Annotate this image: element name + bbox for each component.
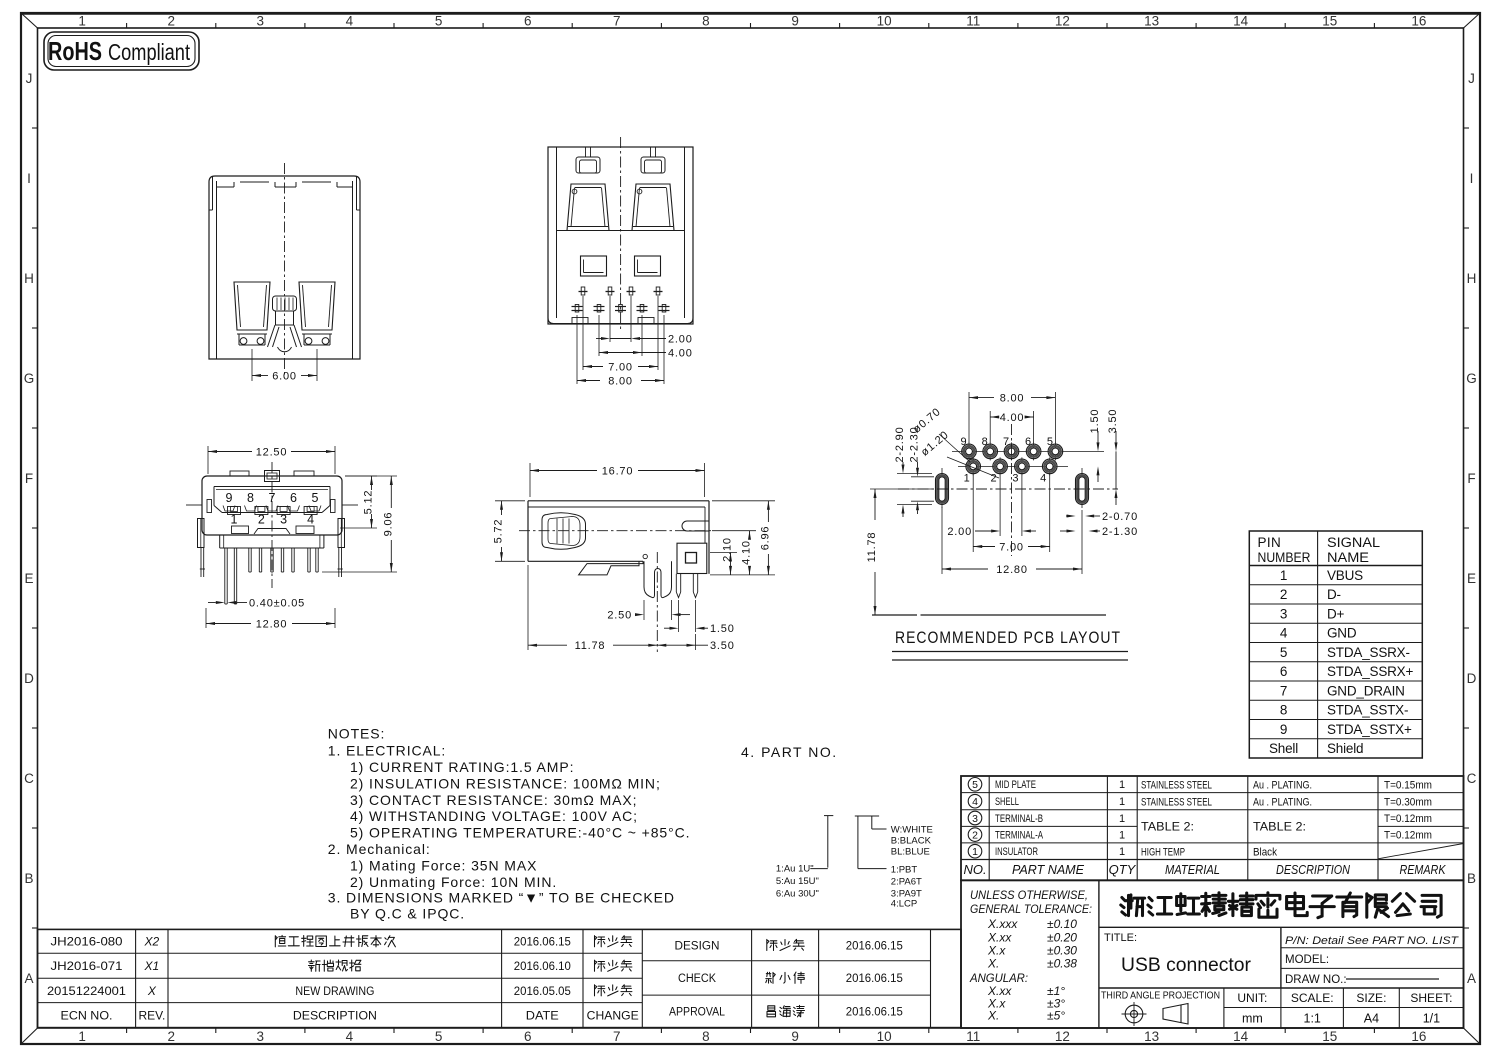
- svg-text:1: 1: [1119, 829, 1125, 841]
- svg-text:Au . PLATING.: Au . PLATING.: [1253, 780, 1312, 792]
- svg-text:ANGULAR:: ANGULAR:: [969, 971, 1028, 985]
- svg-text:9: 9: [960, 436, 966, 448]
- svg-text:Shell: Shell: [1269, 741, 1298, 756]
- svg-text:3: 3: [257, 1029, 265, 1044]
- svg-text:8: 8: [247, 491, 254, 505]
- svg-text:C: C: [1467, 771, 1477, 786]
- svg-text:GND: GND: [1327, 626, 1357, 641]
- svg-text:TERMINAL-B: TERMINAL-B: [995, 813, 1043, 825]
- svg-text:DRAW NO.:: DRAW NO.:: [1285, 974, 1347, 986]
- svg-text:A: A: [1467, 971, 1476, 986]
- svg-text:±0.10: ±0.10: [1047, 917, 1077, 931]
- svg-text:6: 6: [524, 1029, 532, 1044]
- svg-text:3: 3: [972, 813, 978, 825]
- svg-text:Compliant: Compliant: [108, 39, 190, 65]
- svg-text:MODEL:: MODEL:: [1285, 954, 1329, 966]
- svg-text:12.50: 12.50: [256, 447, 288, 459]
- svg-text:BL:BLUE: BL:BLUE: [891, 847, 930, 858]
- svg-text:1: 1: [1280, 568, 1287, 583]
- svg-text:2016.06.10: 2016.06.10: [514, 959, 571, 973]
- svg-text:H: H: [24, 271, 34, 286]
- svg-text:4) WITHSTANDING VOLTAGE: 100V: 4) WITHSTANDING VOLTAGE: 100V AC;: [350, 808, 638, 824]
- svg-text:2: 2: [167, 14, 175, 29]
- svg-text:1.50: 1.50: [1089, 409, 1101, 434]
- svg-text:X.: X.: [987, 1009, 999, 1023]
- svg-text:GENERAL TOLERANCE:: GENERAL TOLERANCE:: [970, 902, 1092, 916]
- svg-text:T=0.15mm: T=0.15mm: [1384, 780, 1432, 792]
- svg-text:8: 8: [702, 1029, 710, 1044]
- svg-text:NAME: NAME: [1327, 550, 1369, 565]
- svg-text:2: 2: [167, 1029, 175, 1044]
- svg-text:10: 10: [877, 14, 892, 29]
- svg-text:2016.06.15: 2016.06.15: [846, 971, 903, 985]
- svg-text:±0.30: ±0.30: [1047, 944, 1077, 958]
- svg-text:SCALE:: SCALE:: [1291, 991, 1334, 1005]
- svg-text:2-1.30: 2-1.30: [1102, 526, 1138, 538]
- svg-text:DESCRIPTION: DESCRIPTION: [293, 1008, 377, 1022]
- svg-text:12.80: 12.80: [996, 564, 1028, 576]
- svg-text:6:Au 30Uʺ: 6:Au 30Uʺ: [776, 889, 819, 900]
- svg-text:2. Mechanical:: 2. Mechanical:: [328, 841, 431, 857]
- svg-text:MID PLATE: MID PLATE: [995, 779, 1036, 791]
- svg-text:11.78: 11.78: [575, 640, 606, 652]
- svg-text:6.96: 6.96: [759, 526, 771, 551]
- svg-text:4.10: 4.10: [741, 540, 753, 565]
- svg-text:1: 1: [964, 473, 970, 485]
- svg-text:1: 1: [972, 846, 978, 858]
- svg-text:7: 7: [269, 491, 276, 505]
- svg-text:UNIT:: UNIT:: [1237, 991, 1267, 1005]
- svg-text:2-2.90: 2-2.90: [894, 427, 906, 463]
- svg-text:SHEET:: SHEET:: [1410, 991, 1452, 1005]
- svg-text:8: 8: [1280, 703, 1287, 718]
- svg-text:I: I: [27, 171, 31, 186]
- svg-text:7: 7: [1003, 436, 1009, 448]
- svg-text:STDA_SSTX-: STDA_SSTX-: [1327, 703, 1408, 718]
- svg-text:5: 5: [1047, 436, 1053, 448]
- svg-text:TABLE 2:: TABLE 2:: [1253, 822, 1306, 834]
- svg-text:J: J: [1468, 71, 1475, 86]
- svg-text:TERMINAL-A: TERMINAL-A: [995, 829, 1043, 841]
- svg-text:APPROVAL: APPROVAL: [669, 1007, 726, 1019]
- svg-text:H: H: [1467, 271, 1477, 286]
- svg-text:STDA_SSTX+: STDA_SSTX+: [1327, 722, 1412, 737]
- svg-text:0.40±0.05: 0.40±0.05: [249, 598, 305, 610]
- svg-text:8: 8: [982, 436, 988, 448]
- svg-text:9: 9: [791, 14, 799, 29]
- svg-text:G: G: [24, 371, 35, 386]
- svg-text:1:PBT: 1:PBT: [891, 864, 918, 875]
- svg-text:5: 5: [435, 14, 443, 29]
- svg-text:C: C: [24, 771, 34, 786]
- svg-text:F: F: [25, 471, 33, 486]
- svg-text:3: 3: [1280, 606, 1287, 621]
- svg-text:BY Q.C & IPQC.: BY Q.C & IPQC.: [350, 906, 465, 922]
- svg-text:QTY: QTY: [1109, 862, 1137, 877]
- svg-text:J: J: [26, 71, 33, 86]
- svg-text:9: 9: [791, 1029, 799, 1044]
- svg-text:4.00: 4.00: [1000, 412, 1025, 424]
- svg-text:11: 11: [966, 1029, 980, 1044]
- svg-text:D: D: [1467, 671, 1477, 686]
- svg-text:1: 1: [1119, 846, 1125, 858]
- svg-text:12.80: 12.80: [256, 619, 288, 631]
- svg-text:E: E: [24, 571, 33, 586]
- svg-text:2.50: 2.50: [607, 610, 632, 622]
- svg-text:4: 4: [346, 14, 354, 29]
- svg-text:I: I: [1470, 171, 1474, 186]
- svg-text:12: 12: [1055, 14, 1070, 29]
- svg-text:4. PART NO.: 4. PART NO.: [741, 744, 838, 760]
- svg-text:2: 2: [991, 473, 997, 485]
- svg-text:4: 4: [307, 513, 314, 527]
- svg-text:7: 7: [613, 14, 621, 29]
- svg-text:GND_DRAIN: GND_DRAIN: [1327, 683, 1405, 698]
- svg-text:1: 1: [231, 513, 238, 527]
- svg-text:X.: X.: [987, 957, 999, 971]
- svg-text:NOTES:: NOTES:: [328, 726, 386, 742]
- svg-text:8: 8: [702, 14, 710, 29]
- svg-text:X1: X1: [144, 959, 160, 973]
- svg-text:1: 1: [1119, 813, 1125, 825]
- svg-text:14: 14: [1233, 1029, 1249, 1044]
- svg-text:MATERIAL: MATERIAL: [1165, 862, 1220, 877]
- svg-text:7.00: 7.00: [999, 542, 1024, 554]
- svg-text:2: 2: [972, 829, 978, 841]
- svg-text:STAINLESS STEEL: STAINLESS STEEL: [1141, 780, 1212, 792]
- svg-text:20151224001: 20151224001: [47, 984, 126, 998]
- svg-text:1/1: 1/1: [1423, 1012, 1440, 1026]
- svg-text:NUMBER: NUMBER: [1258, 550, 1311, 565]
- svg-text:UNLESS OTHERWISE,: UNLESS OTHERWISE,: [970, 888, 1088, 902]
- svg-text:9: 9: [226, 491, 233, 505]
- svg-text:9.06: 9.06: [382, 512, 394, 537]
- svg-text:Au . PLATING.: Au . PLATING.: [1253, 797, 1312, 809]
- svg-text:B:BLACK: B:BLACK: [891, 836, 932, 847]
- svg-text:9: 9: [1280, 722, 1287, 737]
- svg-text:7.00: 7.00: [608, 362, 633, 374]
- svg-text:7: 7: [613, 1029, 621, 1044]
- svg-text:CHANGE: CHANGE: [587, 1008, 639, 1022]
- svg-text:6: 6: [1280, 664, 1287, 679]
- svg-text:6.00: 6.00: [272, 371, 297, 383]
- svg-text:3.50: 3.50: [1107, 409, 1119, 434]
- svg-text:5.72: 5.72: [493, 519, 505, 544]
- svg-text:X.xxx: X.xxx: [987, 917, 1018, 931]
- svg-text:D-: D-: [1327, 587, 1341, 602]
- svg-text:3. DIMENSIONS MARKED “▼” TO BE: 3. DIMENSIONS MARKED “▼” TO BE CHECKED: [328, 889, 675, 905]
- svg-text:16: 16: [1411, 1029, 1426, 1044]
- svg-text:2016.06.15: 2016.06.15: [846, 1005, 903, 1019]
- svg-text:P/N: Detail See PART NO. LIST: P/N: Detail See PART NO. LIST: [1285, 935, 1459, 947]
- svg-text:3: 3: [257, 14, 265, 29]
- svg-text:X2: X2: [144, 935, 160, 949]
- svg-text:1:Au 1Uʺ: 1:Au 1Uʺ: [776, 864, 814, 875]
- svg-text:2016.05.05: 2016.05.05: [514, 984, 571, 998]
- svg-text:13: 13: [1144, 1029, 1159, 1044]
- svg-text:X.x: X.x: [987, 944, 1006, 958]
- svg-text:13: 13: [1144, 14, 1159, 29]
- svg-text:5: 5: [972, 779, 978, 791]
- svg-text:16.70: 16.70: [602, 466, 634, 478]
- svg-text:F: F: [1467, 471, 1475, 486]
- svg-text:RECOMMENDED PCB LAYOUT: RECOMMENDED PCB LAYOUT: [895, 629, 1121, 647]
- svg-text:RoHS: RoHS: [48, 36, 102, 66]
- svg-text:5: 5: [1280, 645, 1287, 660]
- svg-text:4: 4: [1280, 626, 1288, 641]
- svg-text:T=0.30mm: T=0.30mm: [1384, 797, 1432, 809]
- svg-text:PART NAME: PART NAME: [1012, 862, 1084, 877]
- svg-text:5) OPERATING TEMPERATURE:-40°C: 5) OPERATING TEMPERATURE:-40°C ~ +85°C.: [350, 825, 690, 841]
- svg-text:1: 1: [78, 14, 86, 29]
- svg-text:11.78: 11.78: [866, 532, 878, 563]
- svg-text:2: 2: [1280, 587, 1287, 602]
- svg-text:D: D: [24, 671, 34, 686]
- svg-text:5:Au 15Uʺ: 5:Au 15Uʺ: [776, 876, 819, 887]
- svg-text:2016.06.15: 2016.06.15: [514, 935, 571, 949]
- svg-text:6: 6: [1025, 436, 1031, 448]
- svg-text:SIGNAL: SIGNAL: [1327, 535, 1381, 550]
- svg-text:SIZE:: SIZE:: [1356, 991, 1386, 1005]
- svg-text:6: 6: [524, 14, 532, 29]
- svg-text:1) Mating Force: 35N MAX: 1) Mating Force: 35N MAX: [350, 857, 537, 873]
- svg-text:1: 1: [78, 1029, 86, 1044]
- svg-text:4:LCP: 4:LCP: [891, 899, 917, 910]
- svg-text:NO.: NO.: [963, 862, 986, 877]
- svg-text:B: B: [1467, 871, 1476, 886]
- svg-text:D+: D+: [1327, 606, 1345, 621]
- svg-text:±0.38: ±0.38: [1047, 957, 1077, 971]
- svg-text:1) CURRENT RATING:1.5 AMP:: 1) CURRENT RATING:1.5 AMP:: [350, 759, 574, 775]
- svg-text:DESIGN: DESIGN: [675, 940, 720, 952]
- svg-text:2016.06.15: 2016.06.15: [846, 938, 903, 952]
- svg-text:4.00: 4.00: [668, 348, 693, 360]
- svg-text:SHELL: SHELL: [995, 796, 1019, 808]
- svg-text:E: E: [1467, 571, 1476, 586]
- svg-text:10: 10: [877, 1029, 892, 1044]
- svg-text:14: 14: [1233, 14, 1249, 29]
- svg-text:X.xx: X.xx: [987, 931, 1012, 945]
- svg-text:CHECK: CHECK: [678, 973, 716, 985]
- svg-text:1: 1: [1119, 779, 1125, 791]
- svg-text:X: X: [147, 984, 157, 998]
- svg-text:8.00: 8.00: [608, 376, 633, 388]
- svg-text:INSULATOR: INSULATOR: [995, 846, 1038, 858]
- svg-text:4: 4: [972, 796, 978, 808]
- svg-text:STDA_SSRX-: STDA_SSRX-: [1327, 645, 1410, 660]
- svg-text:DATE: DATE: [526, 1008, 559, 1022]
- svg-text:A: A: [24, 971, 33, 986]
- svg-text:REV.: REV.: [138, 1008, 165, 1022]
- svg-text:6: 6: [290, 491, 297, 505]
- svg-text:2.10: 2.10: [722, 537, 734, 562]
- svg-text:4: 4: [1040, 473, 1046, 485]
- svg-text:Shield: Shield: [1327, 741, 1363, 756]
- svg-text:JH2016-071: JH2016-071: [51, 959, 123, 973]
- svg-text:5: 5: [435, 1029, 443, 1044]
- svg-text:3.50: 3.50: [710, 640, 735, 652]
- svg-text:3: 3: [1012, 473, 1018, 485]
- svg-text:TABLE 2:: TABLE 2:: [1141, 822, 1194, 834]
- svg-text:JH2016-080: JH2016-080: [51, 935, 123, 949]
- svg-text:1:1: 1:1: [1304, 1012, 1321, 1026]
- svg-text:2) Unmating Force: 10N MIN.: 2) Unmating Force: 10N MIN.: [350, 874, 557, 890]
- svg-text:USB connector: USB connector: [1121, 954, 1251, 976]
- svg-text:2:PA6T: 2:PA6T: [891, 876, 922, 887]
- svg-text:G: G: [1466, 371, 1477, 386]
- svg-text:5.12: 5.12: [363, 490, 375, 515]
- svg-text:STAINLESS STEEL: STAINLESS STEEL: [1141, 797, 1212, 809]
- svg-text:2) INSULATION RESISTANCE: 100M: 2) INSULATION RESISTANCE: 100MΩ MIN;: [350, 775, 661, 791]
- svg-text:VBUS: VBUS: [1327, 568, 1363, 583]
- svg-text:12: 12: [1055, 1029, 1070, 1044]
- svg-text:Black: Black: [1253, 847, 1277, 859]
- svg-text:HIGH TEMP: HIGH TEMP: [1141, 847, 1185, 859]
- svg-text:T=0.12mm: T=0.12mm: [1384, 813, 1432, 825]
- svg-text:TITLE:: TITLE:: [1104, 932, 1137, 944]
- svg-text:T=0.12mm: T=0.12mm: [1384, 830, 1432, 842]
- svg-text:STDA_SSRX+: STDA_SSRX+: [1327, 664, 1413, 679]
- svg-text:1.50: 1.50: [710, 623, 735, 635]
- svg-text:±5°: ±5°: [1047, 1009, 1065, 1023]
- svg-text:±0.20: ±0.20: [1047, 931, 1077, 945]
- svg-text:2-0.70: 2-0.70: [1102, 511, 1138, 523]
- svg-text:DESCRIPTION: DESCRIPTION: [1276, 862, 1351, 877]
- svg-text:3) CONTACT RESISTANCE: 30mΩ MA: 3) CONTACT RESISTANCE: 30mΩ MAX;: [350, 792, 637, 808]
- svg-text:11: 11: [966, 14, 980, 29]
- svg-text:ECN NO.: ECN NO.: [61, 1008, 113, 1022]
- svg-text:7: 7: [1280, 683, 1287, 698]
- svg-text:B: B: [24, 871, 33, 886]
- svg-text:THIRD ANGLE PROJECTION: THIRD ANGLE PROJECTION: [1101, 990, 1220, 1002]
- svg-text:16: 16: [1411, 14, 1426, 29]
- svg-text:15: 15: [1322, 14, 1337, 29]
- svg-text:15: 15: [1322, 1029, 1337, 1044]
- svg-text:4: 4: [346, 1029, 354, 1044]
- svg-text:mm: mm: [1242, 1012, 1263, 1026]
- svg-text:A4: A4: [1364, 1012, 1379, 1026]
- svg-text:8.00: 8.00: [1000, 393, 1025, 405]
- svg-text:1. ELECTRICAL:: 1. ELECTRICAL:: [328, 743, 446, 759]
- svg-text:PIN: PIN: [1258, 535, 1282, 550]
- svg-text:2.00: 2.00: [668, 334, 693, 346]
- svg-text:3: 3: [280, 513, 287, 527]
- svg-text:NEW DRAWING: NEW DRAWING: [295, 984, 374, 998]
- svg-text:2: 2: [258, 513, 265, 527]
- svg-text:2.00: 2.00: [947, 526, 972, 538]
- svg-text:1: 1: [1119, 796, 1125, 808]
- svg-text:REMARK: REMARK: [1400, 862, 1447, 877]
- svg-text:5: 5: [312, 491, 319, 505]
- svg-text:W:WHITE: W:WHITE: [891, 825, 933, 836]
